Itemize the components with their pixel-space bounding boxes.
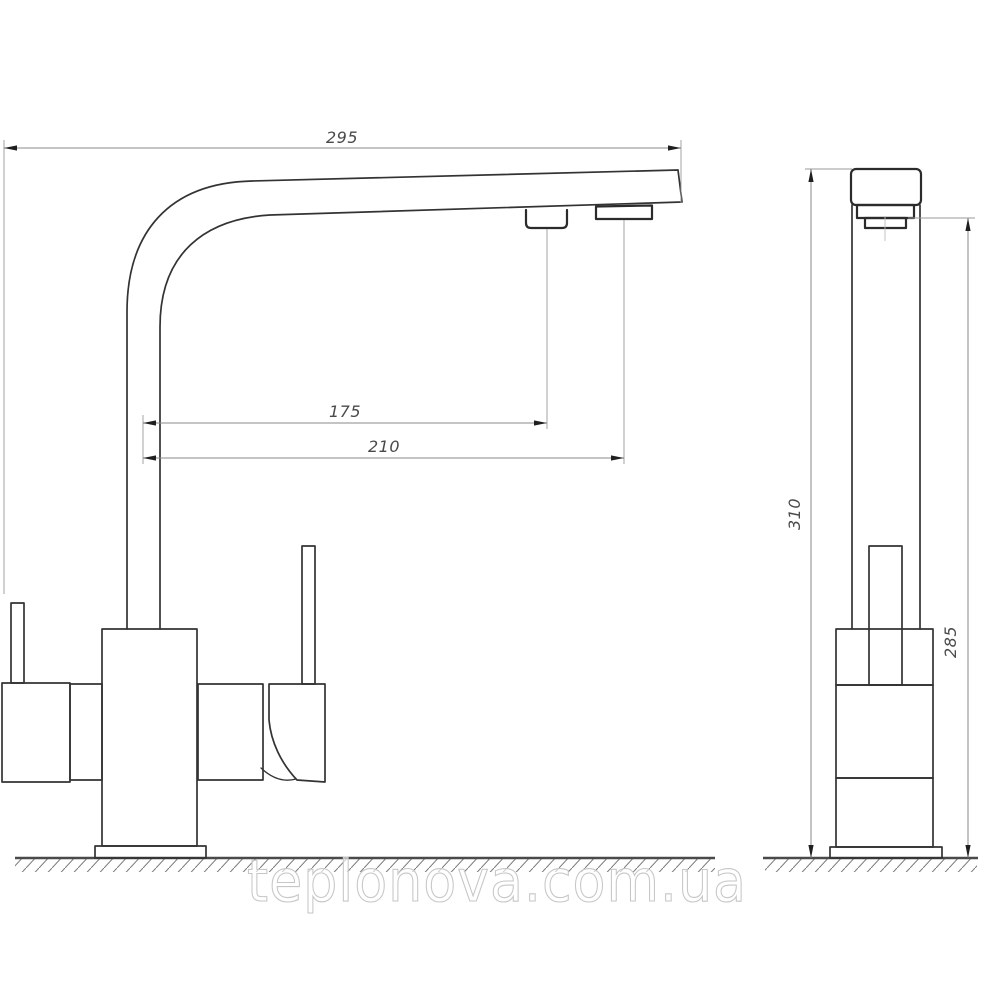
spout-outline <box>127 170 682 629</box>
base-plate-front <box>95 846 206 858</box>
base-plate-side <box>830 847 942 858</box>
dimension-285: 285 <box>908 218 975 858</box>
side-body-middle <box>836 685 933 778</box>
dimension-label-210: 210 <box>368 437 400 456</box>
right-handle-block <box>269 684 325 782</box>
dimension-310: 310 <box>785 169 852 858</box>
main-nozzle <box>596 206 652 220</box>
dimension-label-285: 285 <box>941 626 960 658</box>
front-view: 295 175 210 <box>2 128 715 872</box>
faucet-technical-drawing: 295 175 210 <box>0 0 1000 1000</box>
dimension-label-295: 295 <box>326 128 358 147</box>
dimension-175: 175 <box>143 229 547 464</box>
side-body-lower <box>836 778 933 847</box>
filtered-nozzle <box>526 210 567 228</box>
technical-drawing-page: 295 175 210 <box>0 0 1000 1000</box>
left-handle-block <box>2 683 70 782</box>
left-handle-connector <box>70 684 102 780</box>
faucet-body <box>102 629 197 846</box>
dimension-210: 210 <box>143 220 624 464</box>
dimension-295: 295 <box>4 128 681 594</box>
right-handle-lever <box>302 546 315 684</box>
side-nozzle-outer <box>857 205 914 218</box>
side-body-upper <box>836 629 933 685</box>
side-spout-cap <box>851 169 921 205</box>
watermark-text: teplonova.com.ua <box>247 847 747 915</box>
side-handle-lever <box>869 546 902 685</box>
dimension-label-175: 175 <box>329 402 361 421</box>
dimension-label-310: 310 <box>785 498 804 530</box>
ground-hatch-side <box>765 858 977 872</box>
side-view: 310 285 <box>763 169 978 872</box>
right-handle-connector <box>198 684 263 780</box>
left-handle-lever <box>11 603 24 683</box>
side-nozzle-inner <box>865 218 906 228</box>
